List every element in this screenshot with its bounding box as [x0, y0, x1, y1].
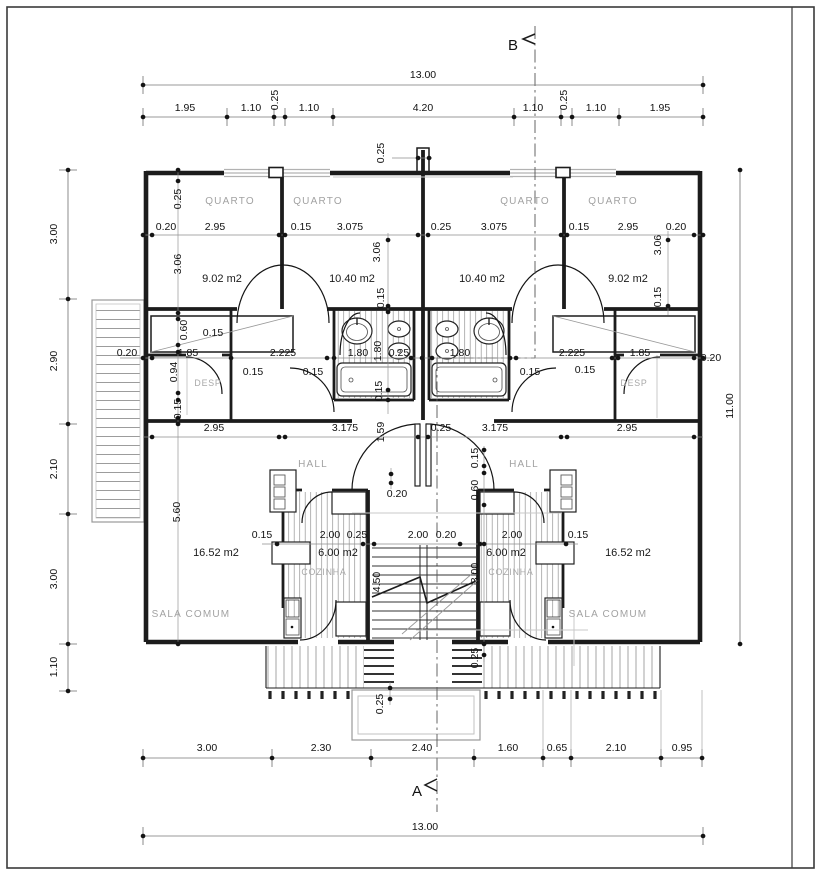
dim-label: 0.15	[520, 366, 541, 378]
window-post-left	[269, 168, 283, 178]
dim-label: 0.20	[436, 529, 457, 541]
dim-label: 0.15	[575, 364, 596, 376]
dim-label: 0.20	[666, 221, 687, 233]
section-label-b: B	[508, 37, 518, 54]
stair-break-line	[372, 577, 476, 603]
desp-door-left-arc	[186, 357, 222, 394]
area-label: 16.52 m2	[605, 547, 651, 559]
dim-label: 1.80	[450, 347, 471, 359]
room-label-sala-right: SALA COMUM	[569, 609, 648, 620]
window-top-2	[282, 168, 330, 177]
area-label: 10.40 m2	[459, 273, 505, 285]
dim-label: 0.15	[652, 287, 664, 308]
dim-label: 0.15	[375, 288, 387, 309]
dim-label: 0.25	[469, 648, 481, 669]
dim-label: 2.00	[408, 529, 429, 541]
dim-label: 1.85	[178, 347, 199, 359]
dim-label: 4.20	[413, 102, 434, 114]
entry-steps-left	[364, 650, 394, 682]
dim-label: 0.15	[373, 381, 385, 402]
dim-label: 1.10	[586, 102, 607, 114]
dim-label: 2.95	[618, 221, 639, 233]
dim-label: 2.90	[48, 351, 60, 372]
area-label: 6.00 m2	[486, 547, 526, 559]
dim-label: 2.00	[502, 529, 523, 541]
dim-label: 1.95	[175, 102, 196, 114]
dim-label: 0.25	[558, 90, 570, 111]
closet-right	[550, 470, 576, 512]
dim-label: 2.00	[320, 529, 341, 541]
dim-label: 0.15	[569, 221, 590, 233]
closet-left	[270, 470, 296, 512]
section-b-notch	[523, 34, 535, 44]
room-label-desp-right: DESP	[620, 378, 647, 388]
desp-door-right-arc	[624, 357, 660, 394]
dim-label: 13.00	[410, 69, 436, 81]
dim-label: 3.075	[481, 221, 507, 233]
dim-label: 1.85	[630, 347, 651, 359]
deck-right-hatch	[482, 646, 659, 688]
room-label-cozinha-right: COZINHA	[488, 567, 533, 577]
dim-label: 0.25	[431, 422, 452, 434]
dim-label: 3.175	[332, 422, 358, 434]
dim-label: 0.15	[243, 366, 264, 378]
dim-label: 2.40	[412, 742, 433, 754]
dim-label: 0.20	[117, 347, 138, 359]
dim-label: 1.10	[241, 102, 262, 114]
bedroom-doors-right-arc	[512, 265, 604, 323]
dim-label: 13.00	[412, 821, 438, 833]
room-label-cozinha-left: COZINHA	[301, 567, 346, 577]
dim-label: 2.95	[205, 221, 226, 233]
area-label: 9.02 m2	[608, 273, 648, 285]
drawing-sheet: B A 13.00 1.95 1.10 0.25 1.10 4.20 1.10 …	[0, 0, 821, 875]
section-a-notch	[425, 779, 437, 791]
dim-label: 0.20	[701, 352, 722, 364]
dim-label: 1.10	[48, 657, 60, 678]
dim-label: 3.00	[48, 569, 60, 590]
dim-label: 2.225	[270, 347, 296, 359]
dim-label: 1.10	[523, 102, 544, 114]
room-label-desp-left: DESP	[194, 378, 221, 388]
dim-label: 0.25	[375, 143, 387, 164]
kitchen-sink-left	[284, 598, 301, 638]
dim-label: 0.60	[178, 320, 190, 341]
dim-label: 0.15	[303, 366, 324, 378]
dimension-lines-outer	[59, 76, 740, 845]
room-label-quarto-4: QUARTO	[588, 196, 638, 207]
dim-label: 0.25	[431, 221, 452, 233]
window-post-right	[556, 168, 570, 178]
dim-label: 0.25	[172, 189, 184, 210]
area-label: 6.00 m2	[318, 547, 358, 559]
dim-label: 2.95	[204, 422, 225, 434]
dim-label: 0.25	[269, 90, 281, 111]
railing-posts	[270, 691, 655, 699]
dim-label: 2.30	[311, 742, 332, 754]
dim-label: 0.60	[469, 480, 481, 501]
dim-label: 2.95	[617, 422, 638, 434]
room-label-sala-left: SALA COMUM	[152, 609, 231, 620]
dim-label: 5.60	[171, 502, 183, 523]
dim-label: 0.95	[672, 742, 693, 754]
kitchen-sink-right	[545, 598, 562, 638]
dim-label: 1.10	[299, 102, 320, 114]
dim-label: 1.59	[375, 422, 387, 443]
dim-label: 0.15	[172, 399, 184, 420]
dim-label: 2.10	[606, 742, 627, 754]
dim-label: 0.20	[156, 221, 177, 233]
section-label-a: A	[412, 783, 422, 800]
dim-label: 1.95	[650, 102, 671, 114]
dim-label: 0.15	[203, 327, 224, 339]
room-label-quarto-3: QUARTO	[500, 196, 550, 207]
dim-label: 0.15	[252, 529, 273, 541]
area-label: 16.52 m2	[193, 547, 239, 559]
dim-label: 3.00	[197, 742, 218, 754]
dim-label: 0.15	[469, 448, 481, 469]
dim-label: 3.00	[48, 224, 60, 245]
dim-label: 3.075	[337, 221, 363, 233]
window-top-1	[224, 168, 271, 177]
window-top-3	[510, 168, 558, 177]
dim-label: 3.06	[652, 235, 664, 256]
dim-label: 1.60	[498, 742, 519, 754]
dim-label: 3.175	[482, 422, 508, 434]
dim-label: 0.25	[389, 347, 410, 359]
dim-label: 0.25	[374, 694, 386, 715]
dim-label: 3.06	[371, 242, 383, 263]
dim-label: 3.00	[469, 563, 481, 584]
area-label: 10.40 m2	[329, 273, 375, 285]
area-label: 9.02 m2	[202, 273, 242, 285]
dim-label: 0.65	[547, 742, 568, 754]
sink-right	[474, 318, 504, 344]
room-label-hall-left: HALL	[298, 459, 328, 470]
dim-label: 2.10	[48, 459, 60, 480]
dim-label: 4.50	[371, 572, 383, 593]
window-top-4	[569, 168, 616, 177]
room-label-quarto-2: QUARTO	[293, 196, 343, 207]
dim-label: 0.25	[347, 529, 368, 541]
dim-label: 0.94	[168, 362, 180, 383]
dim-label: 1.80	[348, 347, 369, 359]
dim-label: 0.15	[568, 529, 589, 541]
room-label-quarto-1: QUARTO	[205, 196, 255, 207]
dim-label: 0.15	[291, 221, 312, 233]
floor-plan-canvas: B A 13.00 1.95 1.10 0.25 1.10 4.20 1.10 …	[0, 0, 821, 875]
dim-label: 1.80	[372, 341, 384, 362]
deck-left-hatch	[266, 646, 364, 688]
room-label-hall-right: HALL	[509, 459, 539, 470]
bathtub-right	[432, 363, 506, 396]
sink-left	[342, 318, 372, 344]
dim-label: 0.20	[387, 488, 408, 500]
dim-label: 3.06	[172, 254, 184, 275]
dim-label: 11.00	[724, 393, 736, 419]
dim-label: 2.225	[559, 347, 585, 359]
